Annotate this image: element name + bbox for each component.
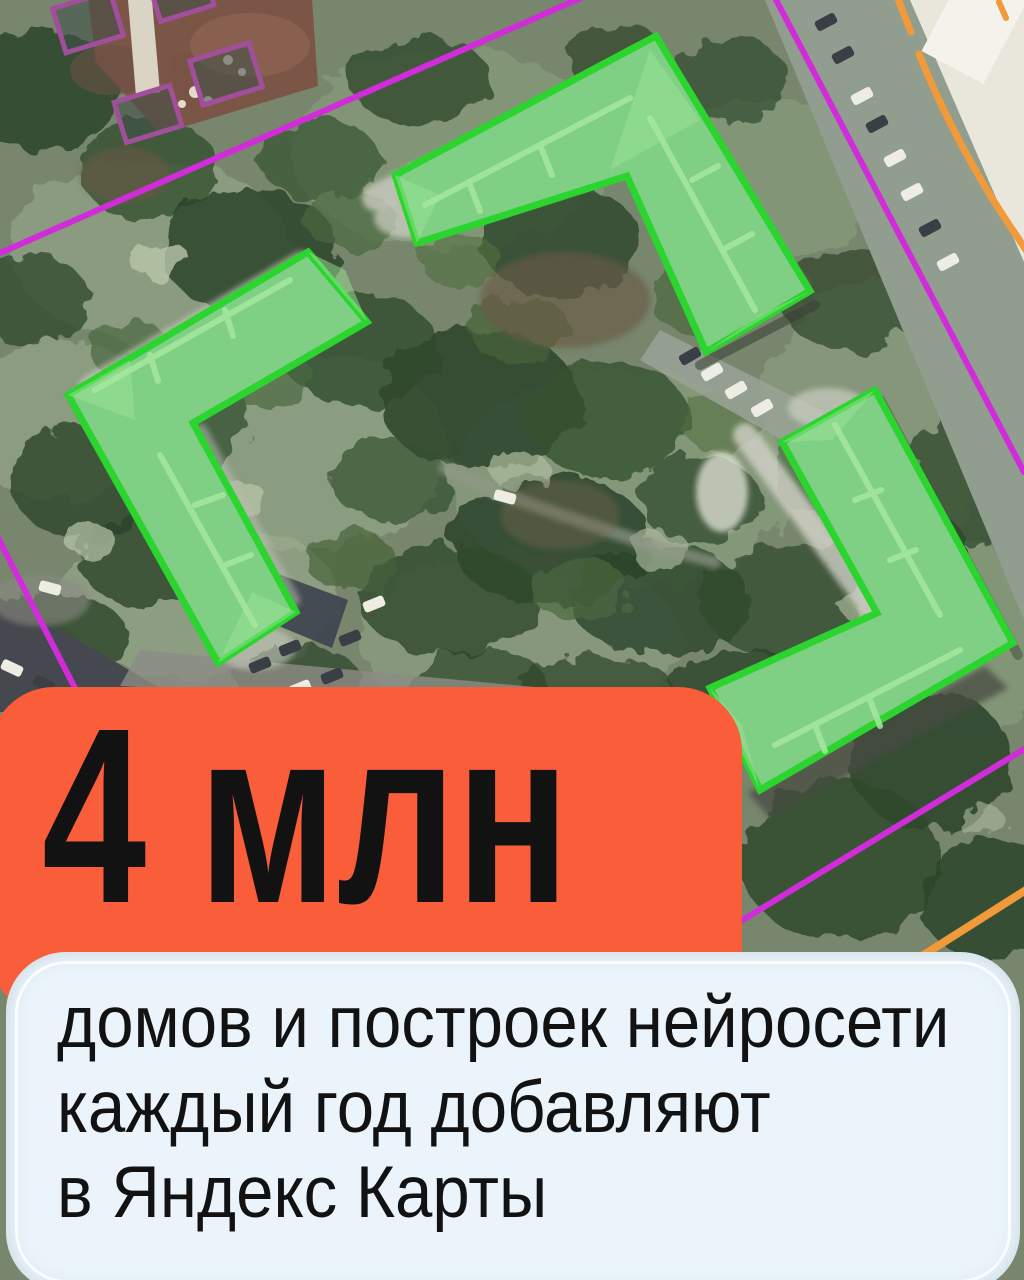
subtitle-line: в Яндекс Карты [57,1150,949,1235]
yandex-maps-poster: 4 млн домов и построек нейросети каждый … [0,0,1024,1280]
subtitle-text: домов и построек нейросети каждый год до… [57,980,949,1235]
subtitle-card: домов и построек нейросети каждый год до… [6,952,1020,1280]
subtitle-line: домов и построек нейросети [57,980,949,1065]
dirt-patch [480,252,650,348]
subtitle-line: каждый год добавляют [57,1065,949,1150]
headline-text: 4 млн [42,691,569,941]
